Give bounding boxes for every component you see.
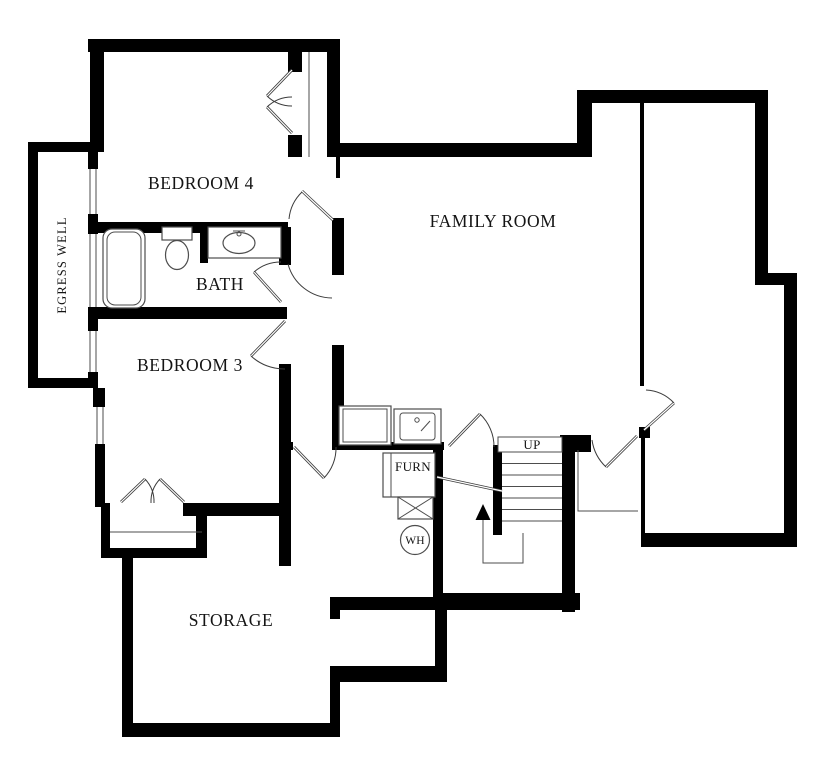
thin-wall: [640, 103, 644, 386]
annotation-up: UP: [523, 437, 540, 452]
thin-wall: [641, 438, 645, 534]
toilet-icon: [162, 227, 192, 270]
wall-segment: [330, 666, 447, 682]
wall-segment: [641, 533, 797, 547]
basement-floor-plan: BEDROOM 4 BATH BEDROOM 3 FAMILY ROOM STO…: [0, 0, 825, 768]
room-label-family-room: FAMILY ROOM: [430, 211, 557, 231]
bedroom3-door: [251, 321, 285, 369]
wall-segment: [88, 39, 340, 52]
utility-sink-icon: [394, 409, 441, 444]
wall-segment: [122, 723, 340, 737]
wall-segment: [93, 307, 287, 319]
wall-segment: [288, 135, 302, 157]
wall-segment: [95, 444, 105, 507]
wall-segment: [784, 273, 797, 547]
laundry-tub-icon: [339, 406, 391, 445]
bedroom4-door: [289, 191, 333, 220]
wall-segment: [755, 90, 768, 285]
wall-segment: [435, 610, 447, 668]
wall-segment: [90, 52, 104, 152]
stairs: [437, 437, 638, 563]
wall-segment: [279, 364, 291, 566]
wall-segment: [122, 556, 133, 736]
bathtub-icon: [103, 229, 145, 308]
thin-wall: [336, 155, 340, 178]
flue-box-icon: [398, 497, 433, 519]
stair-break-line: [437, 477, 502, 491]
bath-door: [254, 262, 281, 302]
wall-segment: [101, 503, 110, 553]
room-label-bedroom3: BEDROOM 3: [137, 355, 243, 375]
room-label-storage: STORAGE: [189, 610, 274, 630]
room-label-bath: BATH: [196, 274, 244, 294]
wall-segment: [562, 435, 575, 612]
window: [90, 331, 96, 372]
wall-segment: [330, 597, 447, 610]
wall-segment: [332, 218, 344, 275]
wall-segment: [330, 610, 340, 619]
wall-layer: [28, 39, 797, 737]
floor-plan-page: BEDROOM 4 BATH BEDROOM 3 FAMILY ROOM STO…: [0, 0, 825, 768]
stair-landing: [578, 450, 638, 511]
wall-segment: [28, 142, 38, 388]
wall-segment: [577, 90, 768, 103]
stair-treads: [502, 452, 562, 521]
utility-fixtures: [339, 406, 441, 555]
window: [90, 234, 96, 307]
hall-arc: [288, 264, 332, 298]
wall-segment: [101, 548, 207, 558]
wall-segment: [93, 388, 105, 407]
window: [90, 169, 96, 214]
bedroom3-closet-doors: [121, 479, 184, 503]
stair-hall-door: [449, 414, 494, 447]
wall-segment: [183, 503, 291, 516]
wall-segment: [88, 372, 98, 388]
wall-segment: [327, 52, 340, 157]
room-label-egress-well: EGRESS WELL: [55, 216, 69, 313]
family-room-door-east: [644, 390, 674, 430]
bath-sink-icon: [208, 227, 281, 258]
wall-segment: [88, 152, 98, 169]
wall-segment: [288, 52, 302, 72]
bath-fixtures: [103, 227, 281, 308]
annotation-water-heater: WH: [405, 535, 425, 547]
bedroom4-closet-doors: [267, 70, 292, 133]
wall-segment: [327, 143, 592, 157]
room-label-bedroom4: BEDROOM 4: [148, 173, 254, 193]
landing-door: [592, 436, 637, 467]
window: [97, 407, 103, 444]
wall-segment: [440, 593, 580, 610]
wall-segment: [28, 378, 90, 388]
wall-segment: [200, 227, 208, 263]
utility-room-door: [294, 447, 336, 478]
annotation-furnace: FURN: [395, 459, 431, 474]
